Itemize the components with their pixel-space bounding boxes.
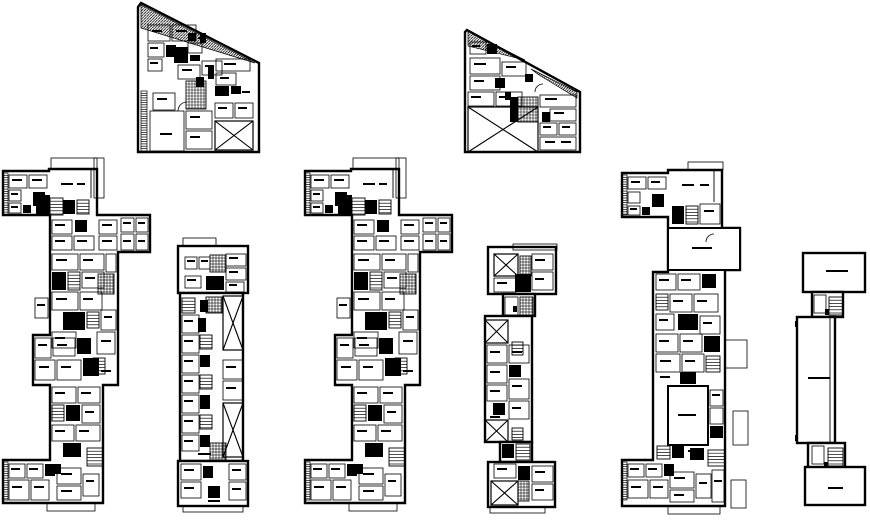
floor-plan-apartment-block-2 [305,158,457,514]
floor-plan-core-tower-1 [178,238,248,514]
floor-plan-penthouse-left [138,3,262,155]
floor-plan-core-tower-2 [485,244,557,514]
cad-drawing-sheet [0,0,870,520]
floor-plan-apartment-terraces [620,162,750,516]
floor-plan-penthouse-right [465,28,583,154]
floor-plan-roof-terrace [795,253,867,507]
floor-plan-apartment-block-1 [3,158,155,514]
